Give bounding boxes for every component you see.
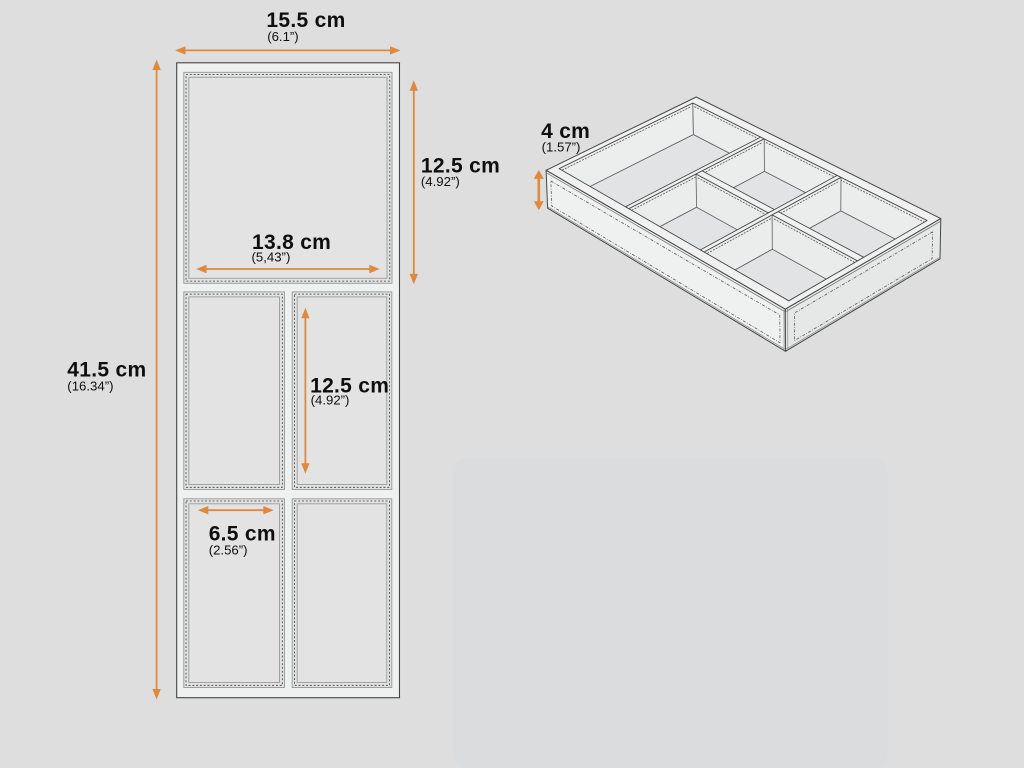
svg-text:(16.34”): (16.34”) [67, 378, 113, 393]
svg-text:(1.57”): (1.57”) [542, 139, 581, 154]
svg-text:(4.92”): (4.92”) [421, 174, 460, 189]
svg-text:(6.1”): (6.1”) [267, 29, 299, 44]
svg-text:(2.56”): (2.56”) [209, 543, 248, 558]
svg-text:(5,43”): (5,43”) [252, 249, 291, 264]
svg-text:(4.92”): (4.92”) [311, 393, 350, 408]
